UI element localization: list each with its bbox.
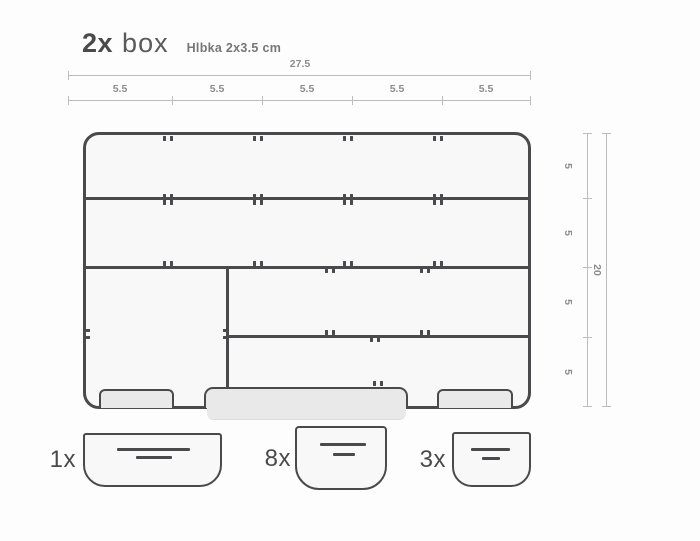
piece-3-quantity: 3x <box>414 446 446 474</box>
dim-label-top-segment: 5.5 <box>113 83 128 95</box>
dim-tick <box>68 71 69 80</box>
slot-mark <box>332 330 335 335</box>
slot-mark <box>350 194 353 205</box>
slot-mark <box>440 261 443 266</box>
slot-mark <box>223 329 228 332</box>
slot-mark <box>223 336 228 339</box>
slot-mark <box>163 194 166 205</box>
slot-mark <box>86 336 91 339</box>
title-subtitle: Hlbka 2x3.5 cm <box>187 41 282 55</box>
title-product: box <box>122 28 169 59</box>
slot-mark <box>332 268 335 273</box>
dim-tick <box>583 133 592 134</box>
dim-label-top-segment: 5.5 <box>479 83 494 95</box>
dim-tick <box>583 406 592 407</box>
dim-label-top-total: 27.5 <box>290 58 310 70</box>
dim-label-right-segment: 5 <box>562 230 574 236</box>
divider-line-row2 <box>85 266 529 269</box>
dim-tick <box>172 96 173 105</box>
slot-mark <box>370 337 373 342</box>
dim-line-top-segments <box>68 100 531 101</box>
slot-mark <box>260 261 263 266</box>
dim-line-top-total <box>68 75 531 76</box>
piece-2-quantity: 8x <box>255 445 291 473</box>
slot-mark <box>373 381 376 386</box>
slot-mark <box>350 261 353 266</box>
slot-mark <box>420 268 423 273</box>
slot-mark <box>433 136 436 141</box>
foot-middle-upper <box>204 387 408 408</box>
slot-mark <box>433 261 436 266</box>
dim-label-right-segment: 5 <box>562 369 574 375</box>
slot-mark <box>343 136 346 141</box>
box-outline <box>83 132 531 409</box>
slot-mark <box>170 194 173 205</box>
slot-mark <box>343 261 346 266</box>
slot-mark <box>170 136 173 141</box>
foot-right <box>437 389 513 408</box>
slot-mark <box>440 194 443 205</box>
dim-tick <box>352 96 353 105</box>
piece-1-slot-line-long <box>117 448 190 451</box>
dim-tick <box>442 96 443 105</box>
slot-mark <box>325 268 328 273</box>
slot-mark <box>170 261 173 266</box>
piece-3-slot-line-short <box>482 457 500 460</box>
piece-3-slot-line-long <box>471 448 510 451</box>
dim-tick <box>68 96 69 105</box>
slot-mark <box>253 261 256 266</box>
slot-mark <box>420 330 423 335</box>
slot-mark <box>325 330 328 335</box>
dim-tick <box>583 198 592 199</box>
dim-label-right-segment: 5 <box>562 163 574 169</box>
dim-label-top-segment: 5.5 <box>300 83 315 95</box>
foot-middle-lower <box>207 408 406 420</box>
slot-mark <box>440 136 443 141</box>
dim-tick <box>602 406 611 407</box>
dim-label-top-segment: 5.5 <box>390 83 405 95</box>
divider-line-vertical <box>226 266 229 388</box>
dim-label-right-segment: 5 <box>562 299 574 305</box>
slot-mark <box>163 136 166 141</box>
dim-label-top-segment: 5.5 <box>210 83 225 95</box>
dim-tick <box>602 133 611 134</box>
piece-1-divider <box>83 433 222 487</box>
foot-left <box>99 389 174 408</box>
piece-1-slot-line-short <box>136 456 172 459</box>
drawing-canvas: 2x box Hlbka 2x3.5 cm 27.5 20 1x 8x 3x 5… <box>0 0 700 541</box>
dim-label-right-total: 20 <box>591 264 603 276</box>
piece-2-slot-line-long <box>320 443 366 446</box>
piece-1-quantity: 1x <box>44 446 76 474</box>
slot-mark <box>343 194 346 205</box>
dim-tick <box>530 71 531 80</box>
dim-line-right-segments <box>587 133 588 407</box>
slot-mark <box>427 330 430 335</box>
slot-mark <box>260 194 263 205</box>
divider-line-row1 <box>85 197 529 200</box>
piece-2-slot-line-short <box>333 453 355 456</box>
dim-line-right-total <box>606 133 607 407</box>
slot-mark <box>380 381 383 386</box>
piece-2-divider <box>295 426 387 490</box>
slot-mark <box>433 194 436 205</box>
slot-mark <box>163 261 166 266</box>
dim-tick <box>530 96 531 105</box>
slot-mark <box>253 136 256 141</box>
dim-tick <box>583 337 592 338</box>
slot-mark <box>350 136 353 141</box>
slot-mark <box>86 329 91 332</box>
title-quantity: 2x <box>82 28 113 59</box>
dim-tick <box>262 96 263 105</box>
slot-mark <box>427 268 430 273</box>
title: 2x box Hlbka 2x3.5 cm <box>82 28 281 59</box>
piece-3-divider <box>452 432 531 487</box>
slot-mark <box>260 136 263 141</box>
slot-mark <box>253 194 256 205</box>
dim-tick <box>583 267 592 268</box>
slot-mark <box>377 337 380 342</box>
